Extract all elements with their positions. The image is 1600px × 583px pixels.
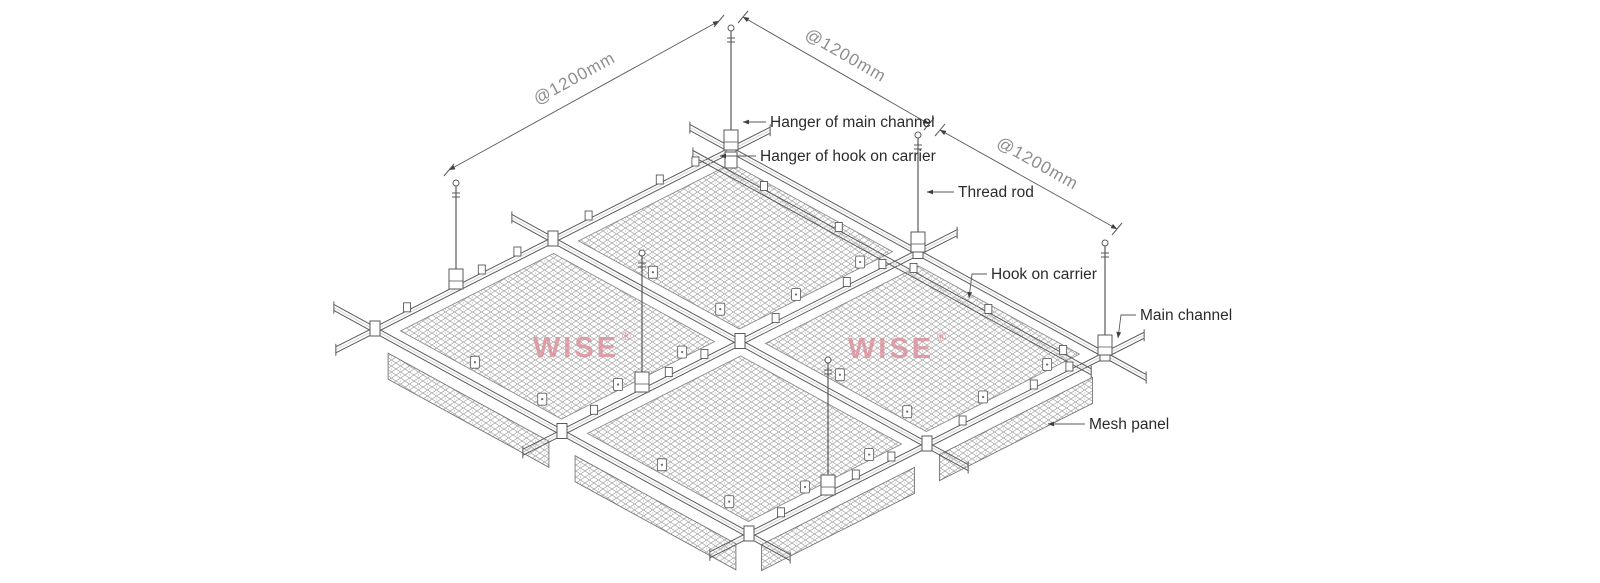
carrier-hook	[985, 304, 992, 313]
dimension-end-tick	[1112, 223, 1122, 235]
carrier-hook	[1060, 345, 1067, 354]
panel-clip-dot	[681, 351, 683, 353]
hanger-bracket	[724, 130, 738, 150]
rod-top	[639, 250, 645, 256]
carrier-hook	[778, 508, 785, 517]
panel-clip-dot	[982, 396, 984, 398]
hanger-bracket	[1098, 335, 1112, 355]
channel-connector	[744, 526, 754, 541]
thread-rod	[724, 25, 738, 168]
carrier-hook	[585, 211, 592, 220]
carrier-hook	[514, 247, 521, 256]
carrier-hook	[1030, 380, 1037, 389]
dimension-line	[449, 21, 719, 170]
leader-line	[1118, 315, 1136, 338]
dimension-end-tick	[935, 124, 945, 136]
carrier-hook	[910, 263, 917, 272]
carrier-hook	[656, 175, 663, 184]
channel-connector	[735, 334, 745, 349]
panel-clip-dot	[795, 293, 797, 295]
carrier-hook	[959, 416, 966, 425]
carrier-hook	[692, 157, 699, 166]
carrier-hook	[1066, 362, 1073, 371]
thread-rod	[1098, 240, 1112, 355]
carrier-hook	[852, 470, 859, 479]
channel-connector	[922, 436, 932, 451]
carrier-hook	[843, 278, 850, 287]
carrier-hook	[879, 260, 886, 269]
rod-top	[453, 180, 459, 186]
carrier-hook	[665, 368, 672, 377]
dimension-end-tick	[738, 11, 748, 23]
label-hanger-of-hook-on-carrier: Hanger of hook on carrier	[760, 148, 936, 165]
carrier-hook	[591, 405, 598, 414]
dimension-line	[940, 130, 1117, 229]
carrier-hook	[478, 265, 485, 274]
dimension-end-tick	[714, 15, 724, 27]
carrier-hook	[772, 314, 779, 323]
label-main-channel: Main channel	[1140, 307, 1232, 324]
panel-clip-dot	[859, 261, 861, 263]
watermark-registered-mark-left: ®	[622, 329, 631, 343]
rod-top	[915, 132, 921, 138]
panel-clip-dot	[652, 271, 654, 273]
label-hanger-of-main-channel: Hanger of main channel	[770, 114, 935, 131]
dimension-label-top-right: @1200mm	[802, 24, 890, 86]
panel-clip-dot	[868, 453, 870, 455]
structure-drawing	[334, 11, 1146, 571]
panel-clip-dot	[906, 411, 908, 413]
dimension-line	[743, 17, 929, 124]
rod-top	[825, 357, 831, 363]
hook-carrier-hanger-bracket	[725, 152, 737, 168]
suspended-mesh-ceiling-diagram: @1200mm @1200mm @1200mm Hanger of main c…	[0, 0, 1600, 583]
carrier-hook	[835, 222, 842, 231]
channel-connector	[548, 231, 558, 246]
watermark-registered-mark-right: ®	[937, 330, 946, 344]
carrier-hook	[888, 452, 895, 461]
rod-top	[1102, 240, 1108, 246]
panel-clip-dot	[617, 383, 619, 385]
carrier-hook	[701, 350, 708, 359]
rod-top	[728, 25, 734, 31]
ceiling-system-diagram-page: @1200mm @1200mm @1200mm Hanger of main c…	[0, 0, 1600, 583]
panel-clip-dot	[1046, 363, 1048, 365]
carrier-hook	[404, 303, 411, 312]
dimension-end-tick	[444, 164, 454, 176]
thread-rod	[449, 180, 463, 289]
hanger-bracket	[635, 372, 649, 392]
panel-clip-dot	[728, 501, 730, 503]
hanger-bracket	[821, 475, 835, 495]
label-mesh-panel: Mesh panel	[1089, 416, 1169, 433]
panel-clip-dot	[839, 374, 841, 376]
channel-connector	[557, 424, 567, 439]
dimension-label-left: @1200mm	[530, 48, 618, 108]
panel-clip-dot	[474, 361, 476, 363]
label-thread-rod: Thread rod	[958, 184, 1034, 201]
watermark-wise-left: WISE	[533, 332, 619, 364]
watermark-wise-right: WISE	[848, 333, 934, 365]
label-hook-on-carrier: Hook on carrier	[991, 266, 1097, 283]
panel-clip-dot	[719, 308, 721, 310]
panel-clip-dot	[541, 398, 543, 400]
carrier-hook	[760, 181, 767, 190]
panel-clip-dot	[804, 486, 806, 488]
channel-connector	[370, 321, 380, 336]
hanger-bracket	[911, 232, 925, 252]
hanger-bracket	[449, 269, 463, 289]
panel-clip-dot	[661, 464, 663, 466]
